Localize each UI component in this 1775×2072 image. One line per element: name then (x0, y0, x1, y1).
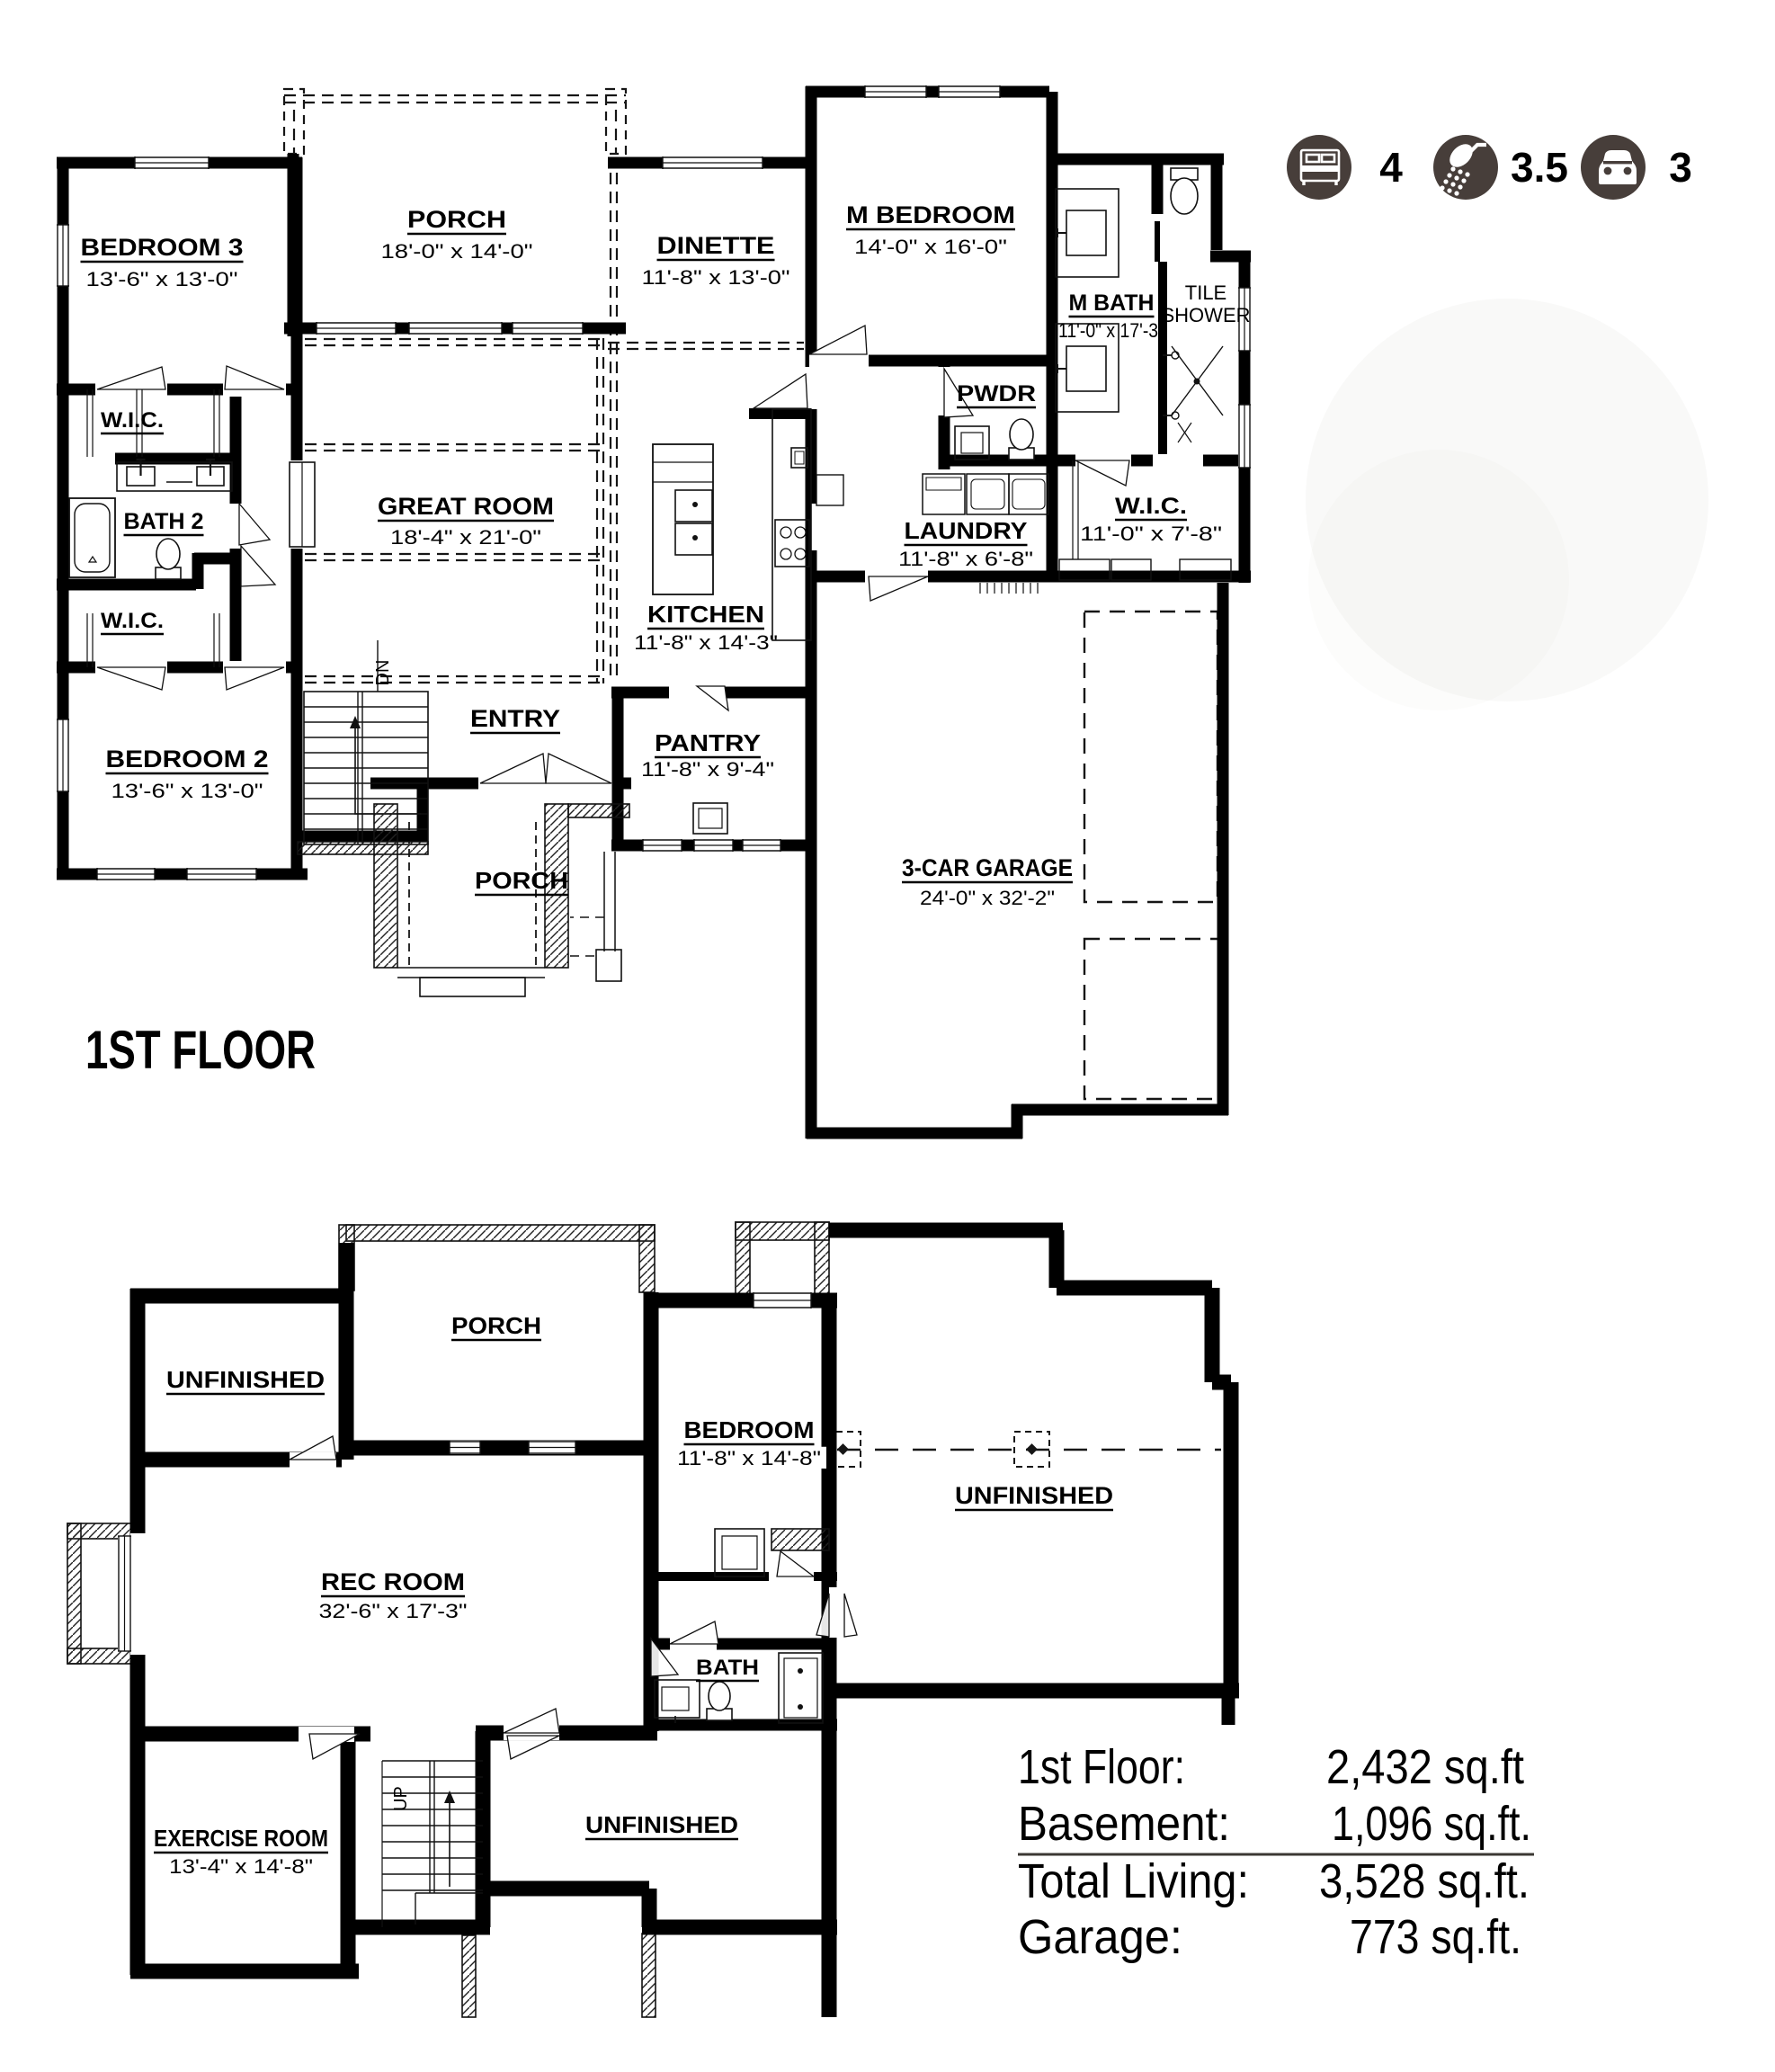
svg-text:1st Floor:: 1st Floor: (1018, 1740, 1185, 1794)
svg-text:18'-4" x 21'-0": 18'-4" x 21'-0" (390, 526, 541, 549)
svg-text:REC ROOM: REC ROOM (321, 1568, 465, 1595)
svg-text:2,432 sq.ft: 2,432 sq.ft (1326, 1740, 1524, 1794)
svg-text:11'-8" x 13'-0": 11'-8" x 13'-0" (642, 266, 790, 289)
svg-text:W.I.C.: W.I.C. (1115, 494, 1187, 519)
svg-text:11'-0" x 17'-3": 11'-0" x 17'-3" (1058, 319, 1164, 342)
svg-text:11'-8" x 14'-3": 11'-8" x 14'-3" (634, 631, 778, 654)
svg-text:EXERCISE ROOM: EXERCISE ROOM (154, 1825, 328, 1852)
svg-text:Basement:: Basement: (1018, 1797, 1230, 1851)
svg-text:BEDROOM 3: BEDROOM 3 (81, 234, 244, 261)
svg-text:UNFINISHED: UNFINISHED (955, 1482, 1113, 1509)
svg-text:DINETTE: DINETTE (657, 232, 775, 259)
svg-text:14'-0" x 16'-0": 14'-0" x 16'-0" (854, 236, 1007, 258)
svg-text:32'-6" x 17'-3": 32'-6" x 17'-3" (319, 1600, 468, 1622)
svg-text:GREAT ROOM: GREAT ROOM (378, 493, 554, 520)
svg-text:UNFINISHED: UNFINISHED (166, 1366, 325, 1393)
svg-text:PORCH: PORCH (407, 206, 506, 233)
svg-text:Total Living:: Total Living: (1018, 1854, 1249, 1908)
svg-text:W.I.C.: W.I.C. (101, 609, 164, 633)
svg-text:13'-4" x 14'-8": 13'-4" x 14'-8" (169, 1855, 313, 1878)
svg-text:11'-8" x 14'-8": 11'-8" x 14'-8" (677, 1447, 821, 1469)
svg-text:BEDROOM 2: BEDROOM 2 (106, 746, 269, 773)
svg-text:773 sq.ft.: 773 sq.ft. (1350, 1910, 1521, 1964)
svg-text:LAUNDRY: LAUNDRY (905, 517, 1028, 544)
svg-text:PORCH: PORCH (451, 1312, 541, 1339)
svg-text:W.I.C.: W.I.C. (101, 408, 164, 433)
svg-text:DN: DN (373, 660, 393, 686)
svg-text:PANTRY: PANTRY (655, 729, 761, 756)
svg-text:SHOWER: SHOWER (1162, 304, 1251, 326)
svg-text:Garage:: Garage: (1018, 1910, 1182, 1964)
svg-text:4: 4 (1379, 144, 1403, 191)
svg-text:BATH: BATH (696, 1656, 759, 1680)
svg-text:24'-0" x 32'-2": 24'-0" x 32'-2" (920, 887, 1055, 909)
svg-text:11'-8" x 9'-4": 11'-8" x 9'-4" (641, 758, 774, 781)
svg-text:PWDR: PWDR (957, 381, 1036, 406)
svg-text:3: 3 (1669, 144, 1692, 191)
svg-text:BEDROOM: BEDROOM (684, 1416, 815, 1443)
svg-text:BATH 2: BATH 2 (124, 509, 204, 534)
svg-text:TILE: TILE (1185, 281, 1226, 304)
svg-text:UP: UP (391, 1786, 411, 1811)
svg-text:18'-0" x 14'-0": 18'-0" x 14'-0" (381, 240, 533, 263)
svg-text:11'-8" x 6'-8": 11'-8" x 6'-8" (898, 548, 1033, 570)
svg-text:13'-6" x 13'-0": 13'-6" x 13'-0" (86, 268, 238, 290)
svg-text:3-CAR GARAGE: 3-CAR GARAGE (902, 854, 1073, 881)
svg-text:11'-0" x 7'-8": 11'-0" x 7'-8" (1080, 522, 1222, 545)
svg-text:3.5: 3.5 (1511, 144, 1568, 191)
svg-text:KITCHEN: KITCHEN (647, 601, 764, 628)
svg-text:M BEDROOM: M BEDROOM (846, 201, 1015, 228)
svg-text:1ST FLOOR: 1ST FLOOR (85, 1020, 316, 1080)
svg-text:ENTRY: ENTRY (470, 705, 560, 732)
svg-text:13'-6" x 13'-0": 13'-6" x 13'-0" (111, 780, 263, 802)
svg-text:3,528 sq.ft.: 3,528 sq.ft. (1319, 1854, 1530, 1908)
svg-text:PORCH: PORCH (475, 867, 568, 894)
svg-text:M BATH: M BATH (1069, 290, 1155, 316)
svg-text:1,096 sq.ft.: 1,096 sq.ft. (1332, 1797, 1531, 1851)
svg-text:UNFINISHED: UNFINISHED (585, 1811, 738, 1838)
